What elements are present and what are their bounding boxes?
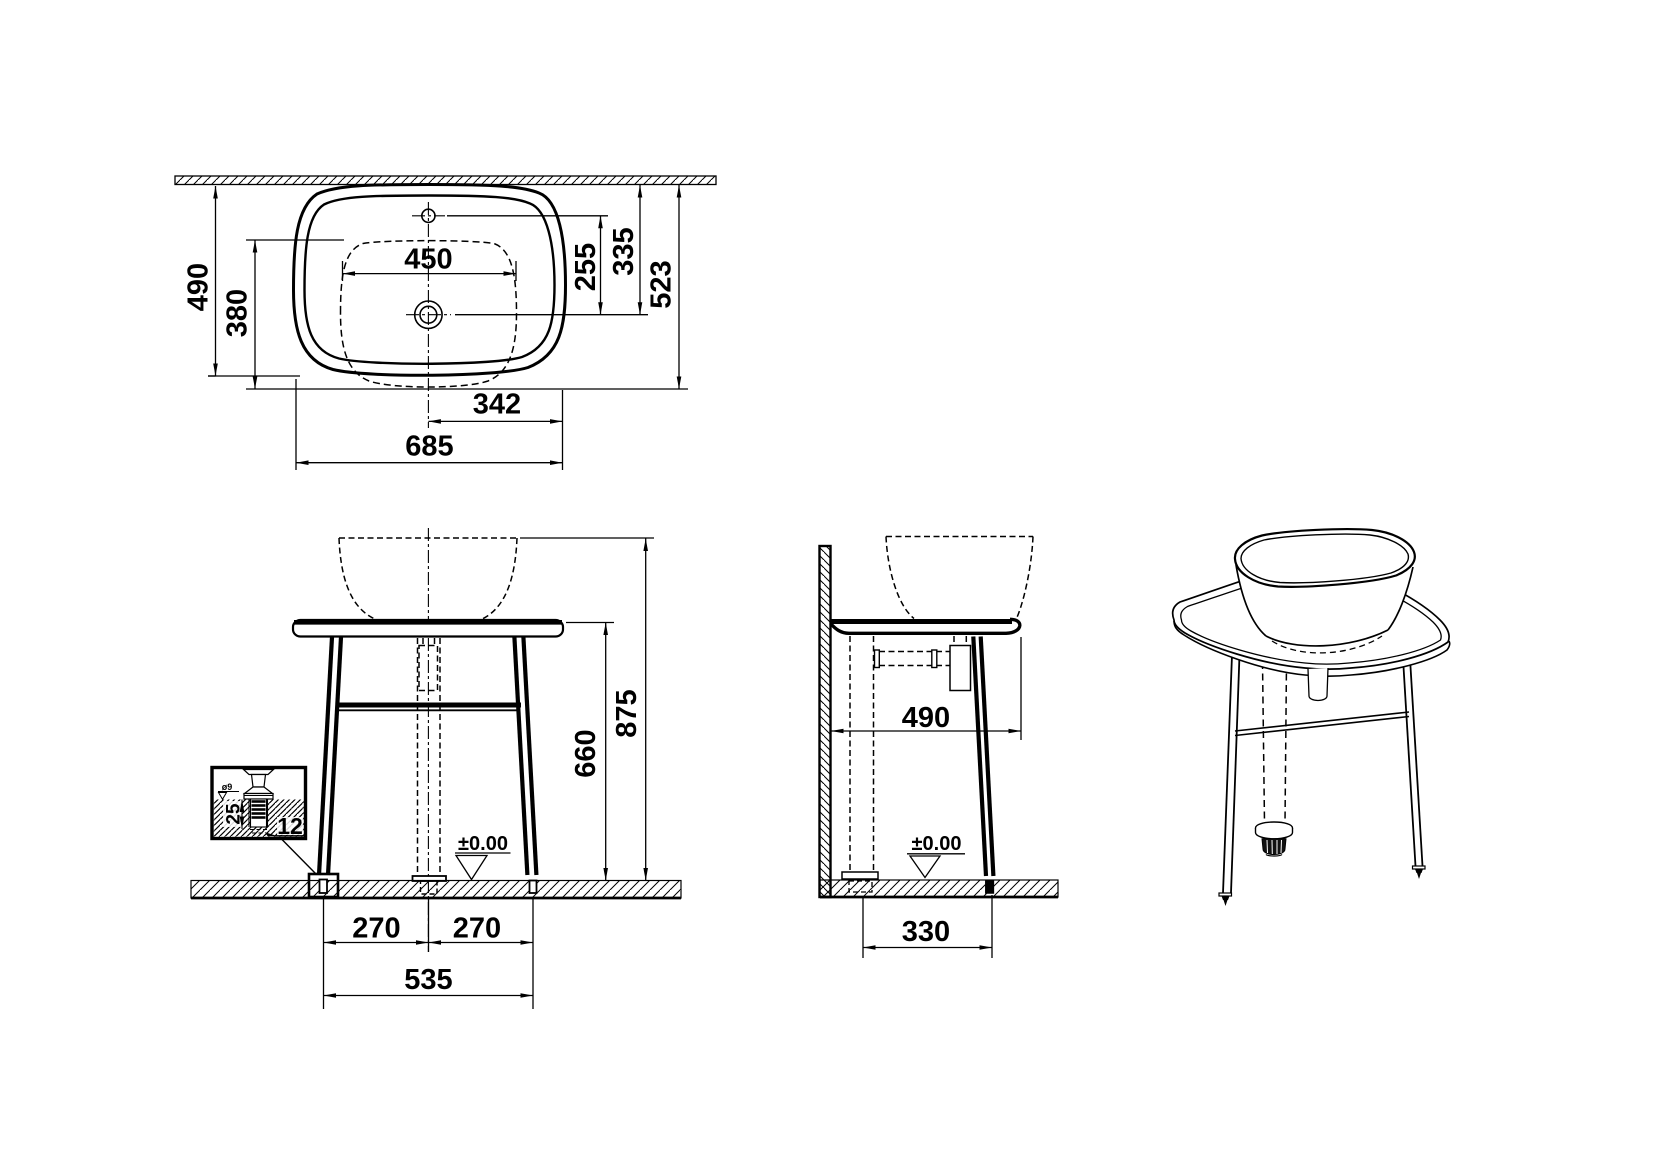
svg-text:±0.00: ±0.00	[458, 833, 508, 855]
svg-text:535: 535	[404, 964, 452, 996]
svg-text:255: 255	[570, 243, 602, 291]
svg-text:490: 490	[183, 263, 215, 311]
svg-text:25: 25	[224, 803, 245, 825]
svg-text:490: 490	[902, 702, 950, 734]
svg-text:660: 660	[570, 729, 602, 777]
svg-text:380: 380	[222, 289, 254, 337]
svg-text:±0.00: ±0.00	[912, 833, 962, 855]
svg-text:342: 342	[473, 389, 521, 421]
svg-text:685: 685	[405, 431, 453, 463]
svg-text:523: 523	[646, 260, 678, 308]
svg-text:450: 450	[404, 244, 452, 276]
svg-text:335: 335	[608, 227, 640, 275]
svg-text:ø9: ø9	[222, 782, 233, 792]
svg-text:875: 875	[611, 689, 643, 737]
svg-text:270: 270	[453, 913, 501, 945]
svg-text:270: 270	[352, 913, 400, 945]
svg-text:330: 330	[902, 916, 950, 948]
